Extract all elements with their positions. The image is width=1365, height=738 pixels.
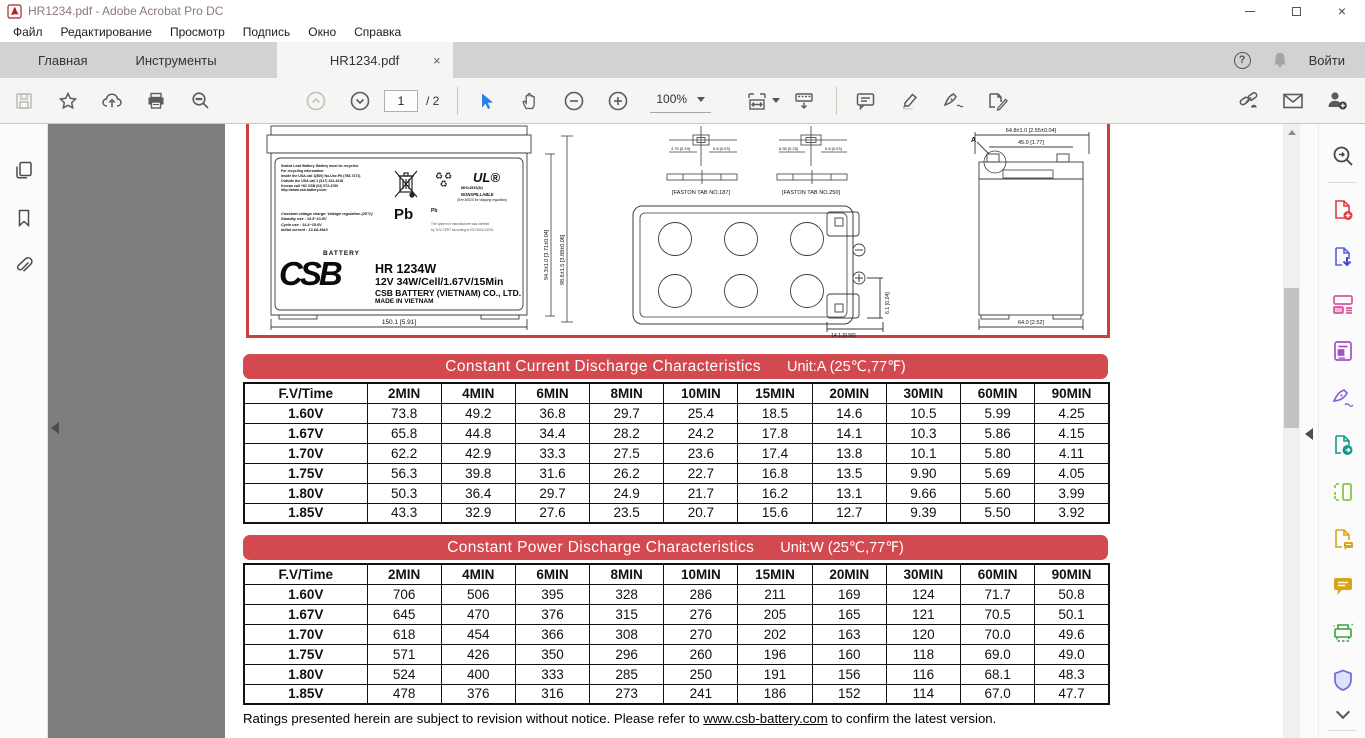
column-header: 20MIN xyxy=(812,564,886,584)
main-area: 150.1 [5.91] Sealed Lead Battery. Batter… xyxy=(0,124,1365,738)
table-cell: 12.7 xyxy=(812,503,886,523)
row-label: 1.67V xyxy=(244,423,367,443)
table-cell: 13.1 xyxy=(812,483,886,503)
battery-side-view: 64.8±1.0 [2.55±0.04] 45.0 [1.77] A 64.0 … xyxy=(965,124,1100,336)
menu-view[interactable]: Просмотр xyxy=(161,25,234,39)
dim-terminal-inset: 14.1 [0.56] xyxy=(831,333,856,338)
hand-tool-button[interactable] xyxy=(510,84,550,118)
table-row: 1.60V70650639532828621116912471.750.8 xyxy=(244,584,1109,604)
table-cell: 24.2 xyxy=(664,423,738,443)
column-header: 30MIN xyxy=(886,564,960,584)
detail-a-label: A xyxy=(971,137,976,144)
favorite-button[interactable] xyxy=(48,84,88,118)
column-header: 15MIN xyxy=(738,383,812,403)
table-cell: 25.4 xyxy=(664,403,738,423)
table-cell: 308 xyxy=(590,624,664,644)
table-cell: 114 xyxy=(886,684,960,704)
fit-width-icon xyxy=(745,90,769,112)
email-button[interactable] xyxy=(1273,84,1313,118)
table-cell: 29.7 xyxy=(590,403,664,423)
footer-link[interactable]: www.csb-battery.com xyxy=(703,711,827,726)
table-cell: 10.5 xyxy=(886,403,960,423)
table-row: 1.67V64547037631527620516512170.550.1 xyxy=(244,604,1109,624)
dim-terminal-offset: 6.1 [0.24] xyxy=(885,292,891,314)
tuv-note-line1: The system of manufacturer was certified xyxy=(431,222,489,226)
table-cell: 395 xyxy=(515,584,589,604)
toolbar: 1 / 2 100% xyxy=(0,78,1365,124)
table-cell: 202 xyxy=(738,624,812,644)
cloud-upload-icon xyxy=(101,91,123,111)
row-label: 1.80V xyxy=(244,664,367,684)
menu-edit[interactable]: Редактирование xyxy=(52,25,161,39)
power-table-title: Constant Power Discharge Characteristics xyxy=(447,539,754,557)
column-header: 10MIN xyxy=(664,564,738,584)
table-cell: 16.2 xyxy=(738,483,812,503)
header-row: F.V/Time2MIN4MIN6MIN8MIN10MIN15MIN20MIN3… xyxy=(244,383,1109,403)
table-cell: 27.6 xyxy=(515,503,589,523)
table-cell: 56.3 xyxy=(367,463,441,483)
sign-in-button[interactable]: Войти xyxy=(1309,53,1345,68)
fill-sign-button[interactable] xyxy=(1319,374,1365,421)
table-cell: 65.8 xyxy=(367,423,441,443)
table-cell: 36.8 xyxy=(515,403,589,423)
column-header: 20MIN xyxy=(812,383,886,403)
title-bar: HR1234.pdf - Adobe Acrobat Pro DC × xyxy=(0,0,1365,22)
create-pdf-button[interactable] xyxy=(1319,186,1365,233)
dim-front-height: 94.3±1.0 [3.71±0.04] xyxy=(544,229,550,280)
bookmarks-button[interactable] xyxy=(0,198,48,238)
column-header: 6MIN xyxy=(515,383,589,403)
table-cell: 26.2 xyxy=(590,463,664,483)
vertical-scrollbar[interactable] xyxy=(1283,124,1300,738)
row-label: 1.70V xyxy=(244,443,367,463)
table-cell: 270 xyxy=(664,624,738,644)
edit-pdf-button[interactable] xyxy=(1319,327,1365,374)
stamp-edit-icon xyxy=(986,90,1009,111)
pdf-page: 150.1 [5.91] Sealed Lead Battery. Batter… xyxy=(225,124,1283,738)
battery-top-view: 6.1 [0.24] 14.1 [0.56] xyxy=(631,202,901,338)
scroll-pages-icon xyxy=(792,91,816,111)
request-signatures-icon xyxy=(1331,527,1355,551)
create-pdf-icon xyxy=(1331,198,1355,222)
csb-logo: CSB xyxy=(279,255,340,293)
more-tools-button[interactable] xyxy=(1319,703,1365,727)
table-cell: 23.5 xyxy=(590,503,664,523)
left-nav-rail xyxy=(0,124,48,738)
nonspillable-label: NONSPILLABLE xyxy=(461,192,494,197)
dim-250-thickness: 0.8 [0.03] xyxy=(825,146,842,151)
dim-side-lid-width: 45.0 [1.77] xyxy=(1018,140,1044,146)
search-tools-button[interactable] xyxy=(1319,132,1365,179)
dim-total-height: 98.6±1.5 [3.88±0.06] xyxy=(560,234,566,285)
select-tool-button[interactable] xyxy=(466,84,506,118)
more-tools-chevron-icon xyxy=(1335,705,1349,719)
fit-caret-icon xyxy=(772,98,780,103)
table-cell: 286 xyxy=(664,584,738,604)
table-cell: 71.7 xyxy=(961,584,1035,604)
column-header: 4MIN xyxy=(441,564,515,584)
collapse-right-panel-icon[interactable] xyxy=(1305,428,1313,440)
table-cell: 706 xyxy=(367,584,441,604)
pb-symbol: Pb xyxy=(394,206,413,223)
tab-home[interactable]: Главная xyxy=(14,42,111,78)
table-cell: 121 xyxy=(886,604,960,624)
column-header: 10MIN xyxy=(664,383,738,403)
table-cell: 70.5 xyxy=(961,604,1035,624)
next-page-button[interactable] xyxy=(340,84,380,118)
table-cell: 70.0 xyxy=(961,624,1035,644)
search-tools-icon xyxy=(1331,144,1355,168)
table-cell: 32.9 xyxy=(441,503,515,523)
fill-sign-icon xyxy=(1330,386,1356,410)
table-cell: 68.1 xyxy=(961,664,1035,684)
sign-button[interactable] xyxy=(933,84,973,118)
table-cell: 43.3 xyxy=(367,503,441,523)
menu-sign[interactable]: Подпись xyxy=(234,25,300,39)
zoom-out-icon xyxy=(563,90,585,112)
table-cell: 34.4 xyxy=(515,423,589,443)
column-header: 60MIN xyxy=(961,564,1035,584)
column-header: 2MIN xyxy=(367,383,441,403)
table-cell: 4.05 xyxy=(1035,463,1109,483)
organize-pages-button[interactable] xyxy=(1319,280,1365,327)
open-tools-pane-button[interactable] xyxy=(1319,734,1365,738)
star-icon xyxy=(58,91,78,111)
table-cell: 50.1 xyxy=(1035,604,1109,624)
column-header: 90MIN xyxy=(1035,383,1109,403)
table-cell: 260 xyxy=(664,644,738,664)
table-cell: 31.6 xyxy=(515,463,589,483)
table-cell: 205 xyxy=(738,604,812,624)
table-cell: 376 xyxy=(515,604,589,624)
dim-187-width: 4.75 [0.19] xyxy=(671,146,690,151)
table-cell: 36.4 xyxy=(441,483,515,503)
table-cell: 5.69 xyxy=(961,463,1035,483)
maximize-button[interactable] xyxy=(1273,0,1319,22)
table-cell: 4.25 xyxy=(1035,403,1109,423)
document-area: 150.1 [5.91] Sealed Lead Battery. Batter… xyxy=(48,124,1283,738)
table-cell: 24.9 xyxy=(590,483,664,503)
table-cell: 17.4 xyxy=(738,443,812,463)
made-in-label: MADE IN VIETNAM xyxy=(375,298,434,305)
label-recycle-text: Sealed Lead Battery. Battery must be rec… xyxy=(281,164,393,193)
table-row: 1.60V73.849.236.829.725.418.514.610.55.9… xyxy=(244,403,1109,423)
export-pdf-button[interactable] xyxy=(1319,233,1365,280)
table-cell: 163 xyxy=(812,624,886,644)
print-button[interactable] xyxy=(136,84,176,118)
column-header: 8MIN xyxy=(590,383,664,403)
table-row: 1.70V62.242.933.327.523.617.413.810.15.8… xyxy=(244,443,1109,463)
row-label: 1.75V xyxy=(244,463,367,483)
drawing-frame: 150.1 [5.91] Sealed Lead Battery. Batter… xyxy=(246,124,1110,338)
scrollbar-thumb[interactable] xyxy=(1284,288,1299,428)
table-cell: 160 xyxy=(812,644,886,664)
table-cell: 250 xyxy=(664,664,738,684)
table-cell: 316 xyxy=(515,684,589,704)
table-cell: 18.5 xyxy=(738,403,812,423)
table-cell: 273 xyxy=(590,684,664,704)
table-cell: 165 xyxy=(812,604,886,624)
table-cell: 13.5 xyxy=(812,463,886,483)
send-for-review-button[interactable] xyxy=(1319,421,1365,468)
toolbar-divider xyxy=(457,87,458,115)
table-cell: 524 xyxy=(367,664,441,684)
table-cell: 5.50 xyxy=(961,503,1035,523)
table-row: 1.85V43.332.927.623.520.715.612.79.395.5… xyxy=(244,503,1109,523)
zoom-in-button[interactable] xyxy=(598,84,638,118)
highlight-button[interactable] xyxy=(889,84,929,118)
row-label: 1.80V xyxy=(244,483,367,503)
row-label: 1.60V xyxy=(244,584,367,604)
save-button[interactable] xyxy=(4,84,44,118)
table-cell: 49.0 xyxy=(1035,644,1109,664)
table-cell: 618 xyxy=(367,624,441,644)
ul-logo: UL® xyxy=(473,170,500,185)
table-cell: 454 xyxy=(441,624,515,644)
front-height-dimensions: 94.3±1.0 [3.71±0.04] 98.6±1.5 [3.88±0.06… xyxy=(543,130,579,330)
current-table-unit: Unit:A (25℃,77℉) xyxy=(787,359,906,375)
table-cell: 276 xyxy=(664,604,738,624)
table-cell: 315 xyxy=(590,604,664,624)
comments-tool-icon xyxy=(1331,575,1355,597)
tab-document[interactable]: HR1234.pdf × xyxy=(277,42,453,78)
table-cell: 10.3 xyxy=(886,423,960,443)
zoom-in-icon xyxy=(607,90,629,112)
row-label: 1.60V xyxy=(244,403,367,423)
faston-250-detail: 6.35 [0.25] 0.8 [0.03] [FASTON TAB NO.25… xyxy=(759,126,864,198)
table-cell: 73.8 xyxy=(367,403,441,423)
table-cell: 376 xyxy=(441,684,515,704)
tools-divider xyxy=(1327,730,1357,731)
hand-icon xyxy=(520,91,540,111)
footer-text-before: Ratings presented herein are subject to … xyxy=(243,711,703,726)
table-cell: 69.0 xyxy=(961,644,1035,664)
export-pdf-icon xyxy=(1331,245,1355,269)
page-count-label: / 2 xyxy=(426,94,439,108)
attachments-button[interactable] xyxy=(0,244,48,284)
table-cell: 22.7 xyxy=(664,463,738,483)
fit-width-button[interactable] xyxy=(745,90,780,112)
table-row: 1.70V61845436630827020216312070.049.6 xyxy=(244,624,1109,644)
table-cell: 9.66 xyxy=(886,483,960,503)
menu-file[interactable]: Файл xyxy=(4,25,52,39)
tab-bar: Главная Инструменты HR1234.pdf × ? Войти xyxy=(0,42,1365,78)
table-cell: 17.8 xyxy=(738,423,812,443)
share-people-button[interactable] xyxy=(1317,84,1357,118)
menu-help[interactable]: Справка xyxy=(345,25,410,39)
table-cell: 3.92 xyxy=(1035,503,1109,523)
model-number: HR 1234W xyxy=(375,262,436,276)
zoom-out-button[interactable] xyxy=(554,84,594,118)
paperclip-icon xyxy=(14,254,34,274)
table-cell: 169 xyxy=(812,584,886,604)
table-cell: 506 xyxy=(441,584,515,604)
table-cell: 118 xyxy=(886,644,960,664)
table-cell: 4.11 xyxy=(1035,443,1109,463)
page-number-input[interactable]: 1 xyxy=(384,90,418,112)
previous-page-button[interactable] xyxy=(296,84,336,118)
faston-187-label: [FASTON TAB NO.187] xyxy=(672,190,731,196)
print-icon xyxy=(146,91,166,111)
company-name: CSB BATTERY (VIETNAM) CO., LTD. xyxy=(375,288,521,298)
table-cell: 211 xyxy=(738,584,812,604)
table-cell: 333 xyxy=(515,664,589,684)
table-cell: 10.1 xyxy=(886,443,960,463)
model-spec: 12V 34W/Cell/1.67V/15Min xyxy=(375,276,503,288)
page-thumbnails-button[interactable] xyxy=(0,150,48,190)
help-icon[interactable]: ? xyxy=(1234,52,1251,69)
organize-pages-icon xyxy=(1331,292,1355,316)
column-header: 30MIN xyxy=(886,383,960,403)
power-discharge-table: F.V/Time2MIN4MIN6MIN8MIN10MIN15MIN20MIN3… xyxy=(243,563,1110,705)
ul-number: MH14533(N) xyxy=(461,186,483,190)
close-button[interactable]: × xyxy=(1319,0,1365,22)
table-cell: 28.2 xyxy=(590,423,664,443)
zoom-caret-icon xyxy=(697,97,705,102)
table-cell: 49.6 xyxy=(1035,624,1109,644)
faston-187-detail: 4.75 [0.19] 0.8 [0.03] [FASTON TAB NO.18… xyxy=(649,126,754,198)
column-header: 8MIN xyxy=(590,564,664,584)
table-cell: 33.3 xyxy=(515,443,589,463)
page-down-icon xyxy=(349,90,371,112)
power-table-unit: Unit:W (25℃,77℉) xyxy=(780,540,904,556)
scan-ocr-button[interactable] xyxy=(1319,609,1365,656)
crop-pages-icon xyxy=(1331,480,1355,504)
current-discharge-table: F.V/Time2MIN4MIN6MIN8MIN10MIN15MIN20MIN3… xyxy=(243,382,1110,524)
zoom-level-value: 100% xyxy=(656,92,687,106)
table-cell: 13.8 xyxy=(812,443,886,463)
table-cell: 27.5 xyxy=(590,443,664,463)
recycle-symbols-icon: ♻♻♻ xyxy=(427,172,461,188)
dim-187-thickness: 0.8 [0.03] xyxy=(713,146,730,151)
pb-recycle-label: Pb xyxy=(431,208,437,214)
tuv-note-line2: by TUV CERT according to ISO 9001/14001. xyxy=(431,228,494,232)
scrollbar-up-button[interactable] xyxy=(1283,124,1300,140)
table-cell: 15.6 xyxy=(738,503,812,523)
menu-window[interactable]: Окно xyxy=(299,25,345,39)
footer-text-after: to confirm the latest version. xyxy=(828,711,997,726)
column-header: 2MIN xyxy=(367,564,441,584)
table-row: 1.85V47837631627324118615211467.047.7 xyxy=(244,684,1109,704)
table-cell: 124 xyxy=(886,584,960,604)
tab-close-icon[interactable]: × xyxy=(433,53,441,68)
edit-pdf-icon xyxy=(1331,339,1355,363)
share-cloud-button[interactable] xyxy=(92,84,132,118)
row-label: 1.67V xyxy=(244,604,367,624)
minimize-icon xyxy=(1245,11,1255,12)
table-cell: 48.3 xyxy=(1035,664,1109,684)
table-cell: 3.99 xyxy=(1035,483,1109,503)
scan-ocr-icon xyxy=(1330,621,1356,645)
row-label: 1.85V xyxy=(244,503,367,523)
table-cell: 9.39 xyxy=(886,503,960,523)
table-cell: 21.7 xyxy=(664,483,738,503)
column-header: 60MIN xyxy=(961,383,1035,403)
table-cell: 20.7 xyxy=(664,503,738,523)
table-cell: 50.3 xyxy=(367,483,441,503)
comments-tool-button[interactable] xyxy=(1319,562,1365,609)
table-cell: 4.15 xyxy=(1035,423,1109,443)
search-icon xyxy=(190,90,211,111)
minimize-button[interactable] xyxy=(1227,0,1273,22)
table-row: 1.80V52440033328525019115611668.148.3 xyxy=(244,664,1109,684)
table-cell: 285 xyxy=(590,664,664,684)
table-cell: 470 xyxy=(441,604,515,624)
power-table-banner: Constant Power Discharge Characteristics… xyxy=(243,535,1108,560)
table-cell: 23.6 xyxy=(664,443,738,463)
table-cell: 196 xyxy=(738,644,812,664)
protect-shield-icon xyxy=(1331,668,1355,692)
collapse-left-panel-icon[interactable] xyxy=(51,422,59,434)
tools-divider xyxy=(1327,182,1357,183)
tab-tools[interactable]: Инструменты xyxy=(111,42,240,78)
bookmark-icon xyxy=(15,208,33,228)
edit-stamp-button[interactable] xyxy=(977,84,1017,118)
table-cell: 16.8 xyxy=(738,463,812,483)
column-header: 90MIN xyxy=(1035,564,1109,584)
comment-bubble-icon xyxy=(855,91,876,111)
find-button[interactable] xyxy=(180,84,220,118)
send-review-icon xyxy=(1331,433,1355,457)
table-row: 1.80V50.336.429.724.921.716.213.19.665.6… xyxy=(244,483,1109,503)
crop-pages-button[interactable] xyxy=(1319,468,1365,515)
comment-button[interactable] xyxy=(845,84,885,118)
table-cell: 50.8 xyxy=(1035,584,1109,604)
page-thumbnails-icon xyxy=(14,160,34,180)
share-link-button[interactable] xyxy=(1229,84,1269,118)
scrolling-mode-button[interactable] xyxy=(784,84,824,118)
table-cell: 350 xyxy=(515,644,589,664)
table-cell: 5.99 xyxy=(961,403,1035,423)
battery-front-view: 150.1 [5.91] Sealed Lead Battery. Batter… xyxy=(261,124,541,336)
table-cell: 42.9 xyxy=(441,443,515,463)
acrobat-logo-icon xyxy=(7,4,22,19)
notifications-bell-icon[interactable] xyxy=(1271,51,1289,69)
column-header: F.V/Time xyxy=(244,383,367,403)
dim-side-width-top: 64.8±1.0 [2.55±0.04] xyxy=(1006,128,1057,134)
dim-250-width: 6.35 [0.25] xyxy=(779,146,798,151)
table-cell: 156 xyxy=(812,664,886,684)
table-cell: 400 xyxy=(441,664,515,684)
table-cell: 328 xyxy=(590,584,664,604)
nonspillable-note: (See MSDS for shipping regulation) xyxy=(457,198,507,202)
table-cell: 5.80 xyxy=(961,443,1035,463)
table-cell: 426 xyxy=(441,644,515,664)
envelope-icon xyxy=(1282,92,1304,110)
window-title: HR1234.pdf - Adobe Acrobat Pro DC xyxy=(28,4,223,18)
protect-button[interactable] xyxy=(1319,656,1365,703)
table-cell: 296 xyxy=(590,644,664,664)
zoom-level-select[interactable]: 100% xyxy=(650,89,711,113)
row-label: 1.85V xyxy=(244,684,367,704)
table-cell: 645 xyxy=(367,604,441,624)
table-cell: 67.0 xyxy=(961,684,1035,704)
current-table-banner: Constant Current Discharge Characteristi… xyxy=(243,354,1108,379)
save-icon xyxy=(14,91,34,111)
table-cell: 29.7 xyxy=(515,483,589,503)
table-cell: 14.1 xyxy=(812,423,886,443)
scroll-up-icon xyxy=(1288,130,1296,135)
person-add-icon xyxy=(1326,90,1348,111)
table-cell: 47.7 xyxy=(1035,684,1109,704)
close-icon: × xyxy=(1338,4,1346,18)
tools-rail xyxy=(1318,124,1365,738)
header-row: F.V/Time2MIN4MIN6MIN8MIN10MIN15MIN20MIN3… xyxy=(244,564,1109,584)
request-signatures-button[interactable] xyxy=(1319,515,1365,562)
column-header: 15MIN xyxy=(738,564,812,584)
table-row: 1.67V65.844.834.428.224.217.814.110.35.8… xyxy=(244,423,1109,443)
table-cell: 5.60 xyxy=(961,483,1035,503)
